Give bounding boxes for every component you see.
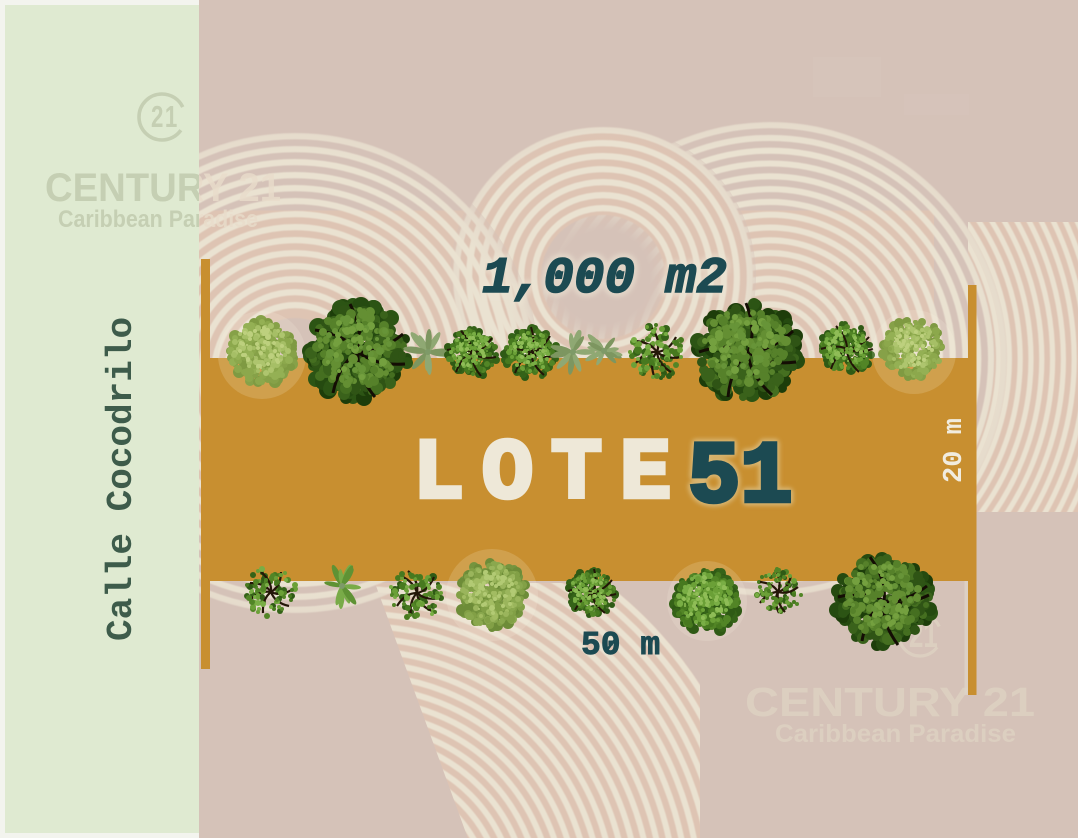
- svg-text:51: 51: [688, 430, 792, 528]
- svg-text:LOTE: LOTE: [413, 426, 689, 523]
- svg-text:1,000 m2: 1,000 m2: [482, 251, 727, 308]
- svg-text:21: 21: [151, 99, 179, 133]
- svg-text:50 m: 50 m: [581, 627, 660, 664]
- svg-text:CENTURY 21: CENTURY 21: [745, 679, 1035, 725]
- svg-text:20 m: 20 m: [940, 418, 970, 483]
- svg-text:Caribbean Paradise: Caribbean Paradise: [775, 720, 1016, 748]
- svg-text:Calle Cocodrilo: Calle Cocodrilo: [101, 317, 142, 641]
